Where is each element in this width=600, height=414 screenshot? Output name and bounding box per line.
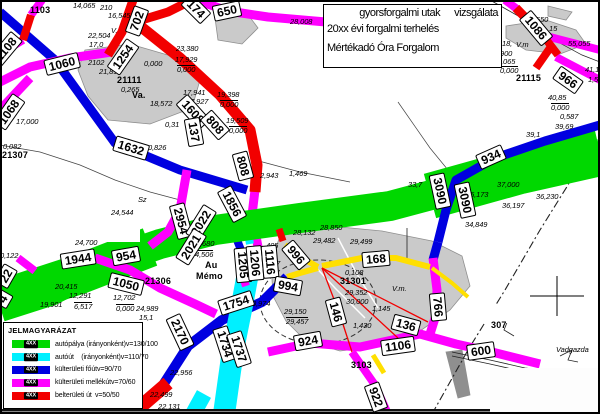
legend-item-label: autóút (irányonként)	[55, 354, 121, 361]
road-segment-magenta	[31, 0, 42, 15]
road-segment-magenta	[18, 258, 35, 271]
legend-color-swatch-cyan: 4XX	[12, 353, 50, 361]
traffic-map-screenshot: 110314,06521016,545V.22,50417,021020,000…	[0, 0, 600, 414]
legend-color-swatch-green: 4XX	[12, 340, 50, 348]
title-line-1: gyorsforgalmi utak vizsgálata	[324, 5, 501, 19]
road-segment-magenta	[556, 57, 600, 80]
title-gap	[440, 7, 454, 19]
legend-item-label: autópálya (irányonként)	[55, 341, 126, 348]
legend-sample-road-label: 4XX	[24, 353, 38, 361]
legend-item-speed: v=110/70	[121, 354, 165, 361]
legend-box: JELMAGYARÁZAT 4XXautópálya (irányonként)…	[3, 322, 143, 409]
road-segment-red	[279, 229, 283, 241]
title-line-1-left: gyorsforgalmi utak	[359, 7, 440, 19]
title-line-1-right: vizsgálata	[454, 7, 498, 19]
map-line	[0, 145, 180, 200]
road-segment-red	[135, 0, 192, 22]
legend-item: 4XXautóút (irányonként)v=110/70	[8, 351, 139, 364]
road-segment-magenta	[240, 268, 246, 286]
map-overlay	[30, 218, 140, 242]
road-segment-magenta	[505, 0, 517, 9]
legend-item: 4XXbelterületi útv=50/50	[8, 389, 139, 402]
legend-item-speed: v=130/100	[126, 341, 170, 348]
legend-item-speed: v=50/50	[95, 392, 139, 399]
road-segment-yellow	[373, 355, 384, 373]
map-title-box: gyorsforgalmi utak vizsgálata 20xx évi f…	[323, 4, 502, 68]
legend-item-label: külterületi főút	[55, 366, 97, 373]
map-line	[255, 160, 350, 182]
legend-title: JELMAGYARÁZAT	[8, 326, 139, 335]
legend-item: 4XXautópálya (irányonként)v=130/100	[8, 338, 139, 351]
map-line	[560, 350, 578, 362]
legend-item-label: külterületi mellékút	[55, 379, 111, 386]
map-line	[398, 102, 448, 170]
road-segment-magenta	[352, 352, 388, 414]
legend-color-swatch-red: 4XX	[12, 392, 50, 400]
legend-color-swatch-blue: 4XX	[12, 366, 50, 374]
title-line-3: Mértékadó Óra Forgalom	[324, 35, 501, 54]
legend-rows: 4XXautópálya (irányonként)v=130/1004XXau…	[8, 338, 139, 402]
legend-sample-road-label: 4XX	[24, 366, 38, 374]
legend-item-speed: v=90/70	[97, 366, 141, 373]
legend-sample-road-label: 4XX	[24, 379, 38, 387]
legend-color-swatch-magenta: 4XX	[12, 379, 50, 387]
legend-item-speed: v=70/60	[111, 379, 155, 386]
map-overlay	[483, 305, 517, 323]
legend-item: 4XXkülterületi mellékútv=70/60	[8, 376, 139, 389]
road-segment-blue	[433, 242, 438, 260]
legend-item: 4XXkülterületi főútv=90/70	[8, 364, 139, 377]
map-overlay	[490, 368, 600, 414]
legend-sample-road-label: 4XX	[24, 341, 38, 349]
title-line-2: 20xx évi forgalmi terhelés	[324, 19, 501, 35]
legend-sample-road-label: 4XX	[24, 392, 38, 400]
legend-item-label: belterületi út	[55, 392, 95, 399]
road-segment-magenta	[95, 258, 216, 314]
settlement-area	[548, 6, 572, 20]
